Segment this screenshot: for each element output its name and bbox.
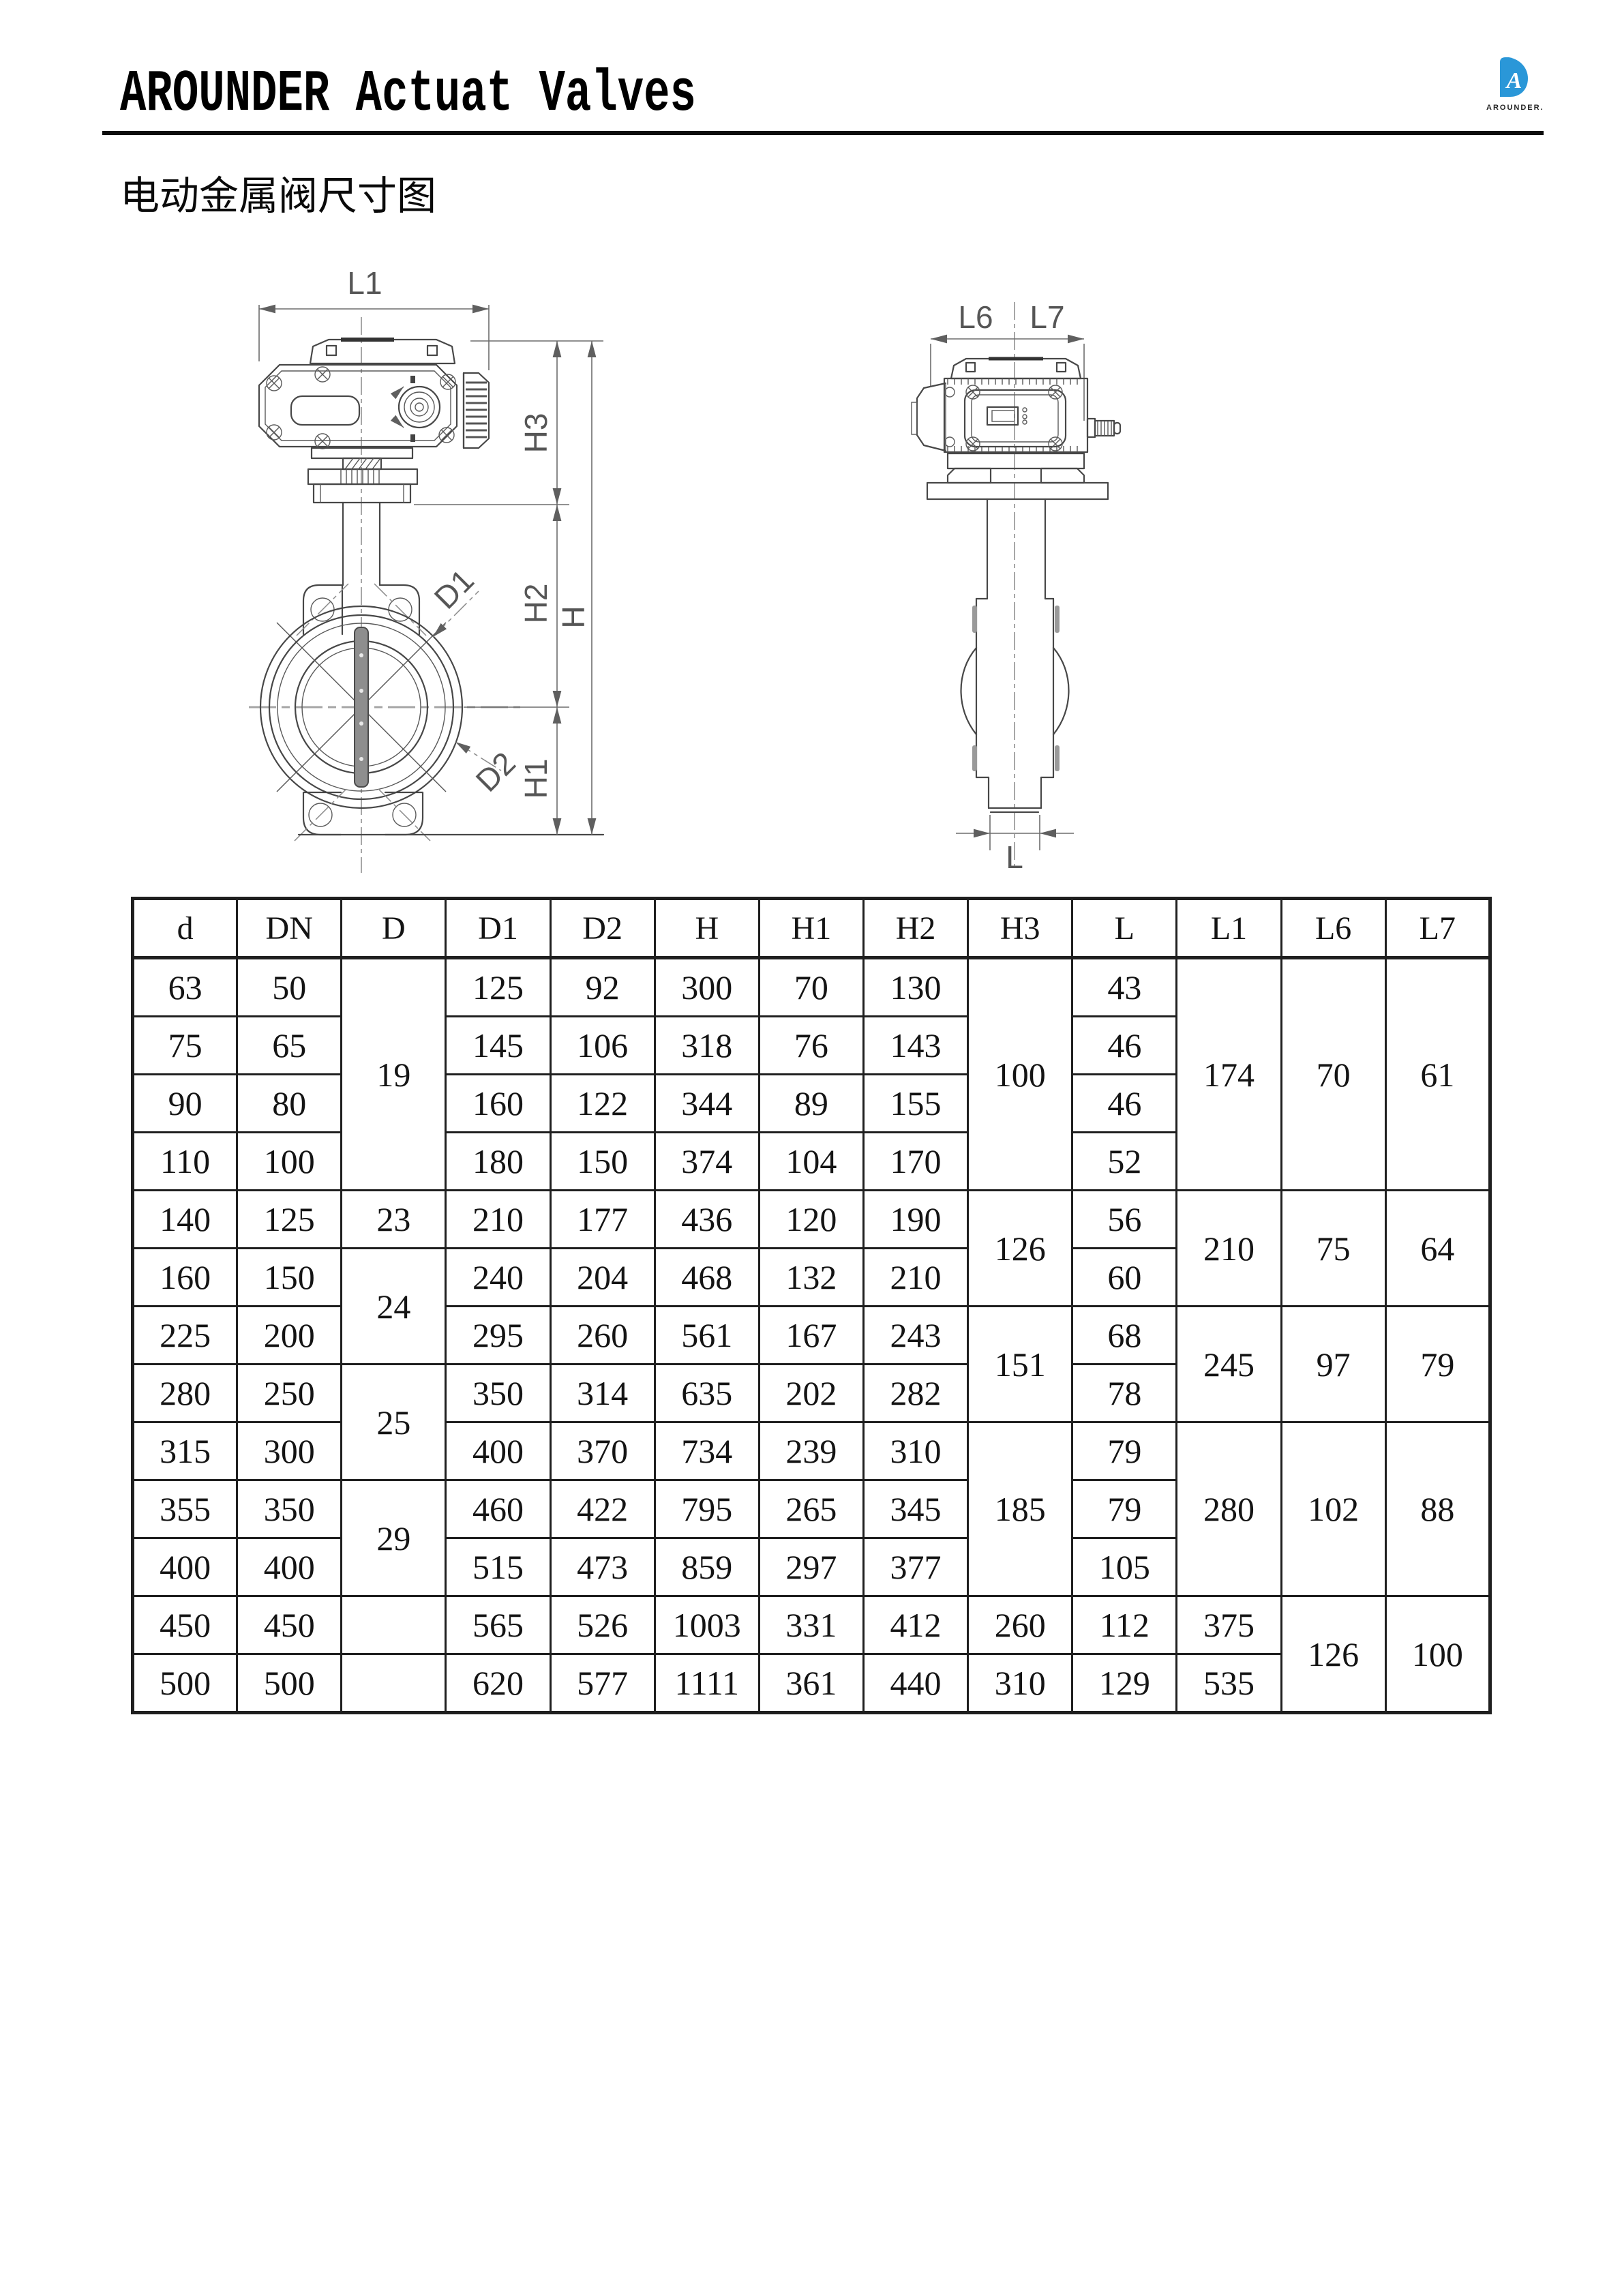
actuator-knob: [397, 376, 440, 442]
table-cell: 92: [550, 958, 655, 1017]
table-cell: 265: [759, 1480, 863, 1538]
table-cell: 150: [550, 1133, 655, 1191]
page-title: AROUNDER Actuat Valves: [120, 65, 696, 124]
table-cell: 185: [968, 1422, 1072, 1596]
side-view-drawing: L6 L7: [880, 263, 1166, 883]
table-cell: 60: [1072, 1249, 1177, 1307]
table-cell: 526: [550, 1596, 655, 1654]
table-cell: 260: [968, 1596, 1072, 1654]
table-cell: 100: [237, 1133, 342, 1191]
table-cell: 145: [446, 1017, 550, 1075]
table-cell: 64: [1385, 1191, 1490, 1307]
side-actuator-cap: [951, 359, 1081, 378]
table-cell: 310: [863, 1422, 967, 1480]
table-cell: 160: [133, 1249, 237, 1307]
dim-label-h2: H2: [518, 584, 554, 624]
dim-label-d2: D2: [469, 745, 522, 799]
actuator-name-plate: [291, 396, 359, 425]
table-row: 4504505655261003331412260112375126100: [133, 1596, 1490, 1654]
table-row: 3153004003707342393101857928010288: [133, 1422, 1490, 1480]
table-cell: 24: [342, 1249, 446, 1365]
table-cell: 174: [1177, 958, 1281, 1191]
table-cell: 350: [446, 1365, 550, 1422]
table-cell: 473: [550, 1538, 655, 1596]
logo-letter: A: [1505, 68, 1522, 93]
table-cell: 63: [133, 958, 237, 1017]
table-header-cell: L: [1072, 899, 1177, 958]
table-cell: 210: [863, 1249, 967, 1307]
table-cell: 374: [655, 1133, 759, 1191]
dim-label-d1: D1: [427, 563, 481, 616]
table-cell: 122: [550, 1075, 655, 1133]
table-cell: 204: [550, 1249, 655, 1307]
table-cell: 50: [237, 958, 342, 1017]
table-cell: 150: [237, 1249, 342, 1307]
table-cell: 297: [759, 1538, 863, 1596]
table-cell: 180: [446, 1133, 550, 1191]
table-cell: 106: [550, 1017, 655, 1075]
table-cell: 79: [1072, 1422, 1177, 1480]
valve-disc: [355, 627, 368, 787]
table-cell: 400: [446, 1422, 550, 1480]
table-cell: [342, 1654, 446, 1713]
table-cell: 52: [1072, 1133, 1177, 1191]
table-cell: 70: [1281, 958, 1385, 1191]
dim-label-l1: L1: [347, 265, 382, 301]
table-cell: 400: [133, 1538, 237, 1596]
table-row: 6350191259230070130100431747061: [133, 958, 1490, 1017]
table-cell: 76: [759, 1017, 863, 1075]
valve-neck: [308, 448, 417, 585]
brand-logo-icon: A: [1498, 56, 1529, 98]
table-cell: 140: [133, 1191, 237, 1249]
table-cell: 132: [759, 1249, 863, 1307]
table-cell: 565: [446, 1596, 550, 1654]
table-cell: 19: [342, 958, 446, 1191]
table-cell: 450: [237, 1596, 342, 1654]
cable-gland: [1087, 419, 1120, 437]
table-cell: 65: [237, 1017, 342, 1075]
table-cell: 535: [1177, 1654, 1281, 1713]
actuator-display: [987, 407, 1027, 425]
table-cell: 250: [237, 1365, 342, 1422]
table-cell: 355: [133, 1480, 237, 1538]
table-cell: 125: [446, 958, 550, 1017]
table-cell: 167: [759, 1307, 863, 1365]
table-header-cell: H1: [759, 899, 863, 958]
table-header-cell: DN: [237, 899, 342, 958]
dim-label-l6: L6: [958, 299, 993, 335]
table-cell: 280: [1177, 1422, 1281, 1596]
table-cell: 620: [446, 1654, 550, 1713]
table-cell: 450: [133, 1596, 237, 1654]
table-cell: 515: [446, 1538, 550, 1596]
table-cell: 561: [655, 1307, 759, 1365]
table-cell: 370: [550, 1422, 655, 1480]
table-header-row: dDNDD1D2HH1H2H3LL1L6L7: [133, 899, 1490, 958]
table-cell: 120: [759, 1191, 863, 1249]
table-cell: 126: [968, 1191, 1072, 1307]
table-cell: 105: [1072, 1538, 1177, 1596]
table-cell: 190: [863, 1191, 967, 1249]
table-cell: 859: [655, 1538, 759, 1596]
table-cell: 46: [1072, 1017, 1177, 1075]
table-header-cell: H: [655, 899, 759, 958]
table-cell: 143: [863, 1017, 967, 1075]
table-cell: 61: [1385, 958, 1490, 1191]
table-cell: 129: [1072, 1654, 1177, 1713]
table-cell: 225: [133, 1307, 237, 1365]
table-cell: 97: [1281, 1307, 1385, 1422]
dim-label-l: L: [1006, 839, 1023, 875]
front-view-drawing: L1: [225, 263, 620, 883]
table-cell: 635: [655, 1365, 759, 1422]
table-cell: 239: [759, 1422, 863, 1480]
table-cell: 468: [655, 1249, 759, 1307]
header-rule: [102, 131, 1544, 135]
table-cell: 177: [550, 1191, 655, 1249]
table-cell: 104: [759, 1133, 863, 1191]
table-cell: 170: [863, 1133, 967, 1191]
table-cell: 243: [863, 1307, 967, 1365]
table-cell: 43: [1072, 958, 1177, 1017]
table-cell: 70: [759, 958, 863, 1017]
table-header-cell: L1: [1177, 899, 1281, 958]
table-cell: 160: [446, 1075, 550, 1133]
table-cell: 25: [342, 1365, 446, 1480]
table-cell: 102: [1281, 1422, 1385, 1596]
table-cell: 1003: [655, 1596, 759, 1654]
table-cell: 295: [446, 1307, 550, 1365]
table-cell: 151: [968, 1307, 1072, 1422]
side-motor-housing: [912, 383, 955, 451]
table-cell: 46: [1072, 1075, 1177, 1133]
table-row: 225200295260561167243151682459779: [133, 1307, 1490, 1365]
table-cell: 23: [342, 1191, 446, 1249]
table-cell: 315: [133, 1422, 237, 1480]
table-cell: 79: [1072, 1480, 1177, 1538]
table-cell: 375: [1177, 1596, 1281, 1654]
table-cell: 210: [446, 1191, 550, 1249]
page-subtitle: 电动金属阀尺寸图: [120, 164, 436, 221]
table-cell: 200: [237, 1307, 342, 1365]
table-cell: 260: [550, 1307, 655, 1365]
dim-label-h1: H1: [518, 759, 554, 799]
table-cell: 400: [237, 1538, 342, 1596]
table-cell: 577: [550, 1654, 655, 1713]
table-cell: 440: [863, 1654, 967, 1713]
table-cell: 734: [655, 1422, 759, 1480]
table-cell: 314: [550, 1365, 655, 1422]
table-cell: 300: [655, 958, 759, 1017]
table-header-cell: L6: [1281, 899, 1385, 958]
table-cell: 56: [1072, 1191, 1177, 1249]
actuator-body: [259, 365, 457, 447]
table-header-cell: L7: [1385, 899, 1490, 958]
table-cell: 412: [863, 1596, 967, 1654]
table-header-cell: d: [133, 899, 237, 958]
side-mounting: [927, 453, 1108, 499]
table-cell: 125: [237, 1191, 342, 1249]
actuator-ribbed-connector: [464, 373, 489, 448]
table-cell: 68: [1072, 1307, 1177, 1365]
dimension-table: dDNDD1D2HH1H2H3LL1L6L7 63501912592300701…: [131, 897, 1492, 1714]
table-cell: 100: [968, 958, 1072, 1191]
table-cell: 460: [446, 1480, 550, 1538]
table-cell: 89: [759, 1075, 863, 1133]
table-cell: 282: [863, 1365, 967, 1422]
table-cell: 75: [1281, 1191, 1385, 1307]
table-cell: 422: [550, 1480, 655, 1538]
table-cell: 126: [1281, 1596, 1385, 1713]
table-header-cell: H3: [968, 899, 1072, 958]
table-cell: 500: [133, 1654, 237, 1713]
table-cell: 436: [655, 1191, 759, 1249]
table-cell: 78: [1072, 1365, 1177, 1422]
table-cell: 29: [342, 1480, 446, 1596]
table-cell: 318: [655, 1017, 759, 1075]
table-cell: 280: [133, 1365, 237, 1422]
table-cell: 210: [1177, 1191, 1281, 1307]
table-cell: 100: [1385, 1596, 1490, 1713]
table-cell: 300: [237, 1422, 342, 1480]
table-cell: 130: [863, 958, 967, 1017]
table-header-cell: D2: [550, 899, 655, 958]
table-cell: 90: [133, 1075, 237, 1133]
table-header-cell: D: [342, 899, 446, 958]
table-cell: 361: [759, 1654, 863, 1713]
table-cell: 345: [863, 1480, 967, 1538]
table-cell: 1111: [655, 1654, 759, 1713]
catalog-page: AROUNDER Actuat Valves A AROUNDER. 电动金属阀…: [0, 0, 1622, 2296]
table-cell: 80: [237, 1075, 342, 1133]
table-cell: 112: [1072, 1596, 1177, 1654]
table-cell: 79: [1385, 1307, 1490, 1422]
table-header-cell: D1: [446, 899, 550, 958]
table-cell: 155: [863, 1075, 967, 1133]
table-cell: 75: [133, 1017, 237, 1075]
dim-label-l7: L7: [1030, 299, 1064, 335]
dim-label-h3: H3: [518, 413, 554, 453]
table-cell: 500: [237, 1654, 342, 1713]
table-row: 14012523210177436120190126562107564: [133, 1191, 1490, 1249]
actuator-cap: [310, 340, 455, 363]
table-cell: 110: [133, 1133, 237, 1191]
table-cell: 377: [863, 1538, 967, 1596]
table-header-cell: H2: [863, 899, 967, 958]
table-cell: 310: [968, 1654, 1072, 1713]
table-cell: 88: [1385, 1422, 1490, 1596]
table-cell: [342, 1596, 446, 1654]
table-cell: 240: [446, 1249, 550, 1307]
table-cell: 202: [759, 1365, 863, 1422]
side-actuator-body: [944, 378, 1087, 452]
table-cell: 245: [1177, 1307, 1281, 1422]
table-cell: 331: [759, 1596, 863, 1654]
dim-label-h: H: [556, 606, 591, 628]
table-cell: 344: [655, 1075, 759, 1133]
brand-logo: A AROUNDER.: [1486, 56, 1541, 112]
table-body: 6350191259230070130100431747061756514510…: [133, 958, 1490, 1713]
table-cell: 350: [237, 1480, 342, 1538]
table-cell: 795: [655, 1480, 759, 1538]
logo-brand-text: AROUNDER.: [1486, 104, 1541, 112]
